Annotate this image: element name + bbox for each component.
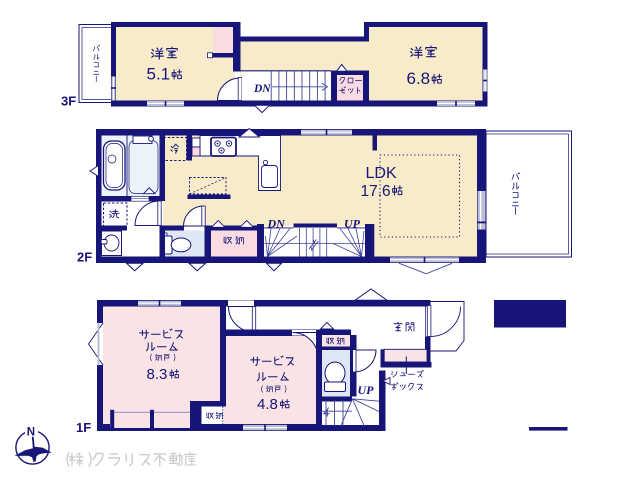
- svg-text:4.8: 4.8: [257, 396, 278, 413]
- svg-text:3F: 3F: [61, 94, 76, 109]
- svg-text:LDK: LDK: [366, 165, 397, 182]
- svg-text:UP: UP: [344, 217, 361, 231]
- svg-text:DN: DN: [267, 217, 287, 231]
- svg-text:N: N: [27, 426, 35, 438]
- svg-text:8.3: 8.3: [147, 366, 168, 383]
- svg-text:5.1: 5.1: [147, 65, 171, 84]
- svg-text:UP: UP: [358, 383, 375, 397]
- svg-text:DN: DN: [253, 83, 271, 95]
- svg-text:17.6: 17.6: [361, 183, 391, 200]
- svg-text:6.8: 6.8: [407, 69, 431, 88]
- svg-text:2F: 2F: [77, 250, 92, 265]
- svg-text:1F: 1F: [76, 420, 91, 435]
